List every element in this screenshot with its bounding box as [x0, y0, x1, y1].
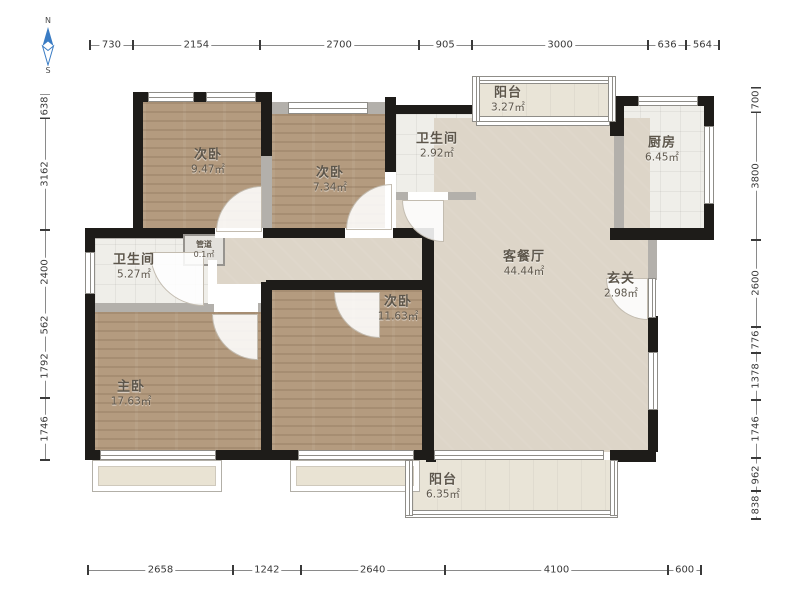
room-name: 玄关: [604, 271, 638, 287]
dimension-tick: [232, 565, 234, 575]
room-area: 6.35㎡: [426, 489, 460, 502]
room-name: 客餐厅: [503, 249, 545, 265]
wall-segment: [614, 134, 624, 234]
room-area: 9.47㎡: [191, 164, 225, 177]
dimension-label-top: 2700: [324, 40, 353, 51]
room-floor-living-dining: [217, 238, 434, 284]
wall-segment: [261, 154, 272, 230]
room-label-bedroom-top-mid: 次卧7.34㎡: [313, 165, 347, 194]
dimension-tick: [751, 490, 761, 492]
compass: N S: [34, 16, 62, 76]
compass-north-label: N: [34, 16, 62, 26]
window: [648, 278, 656, 318]
door-opening: [408, 192, 448, 200]
dimension-tick: [647, 40, 649, 50]
dimension-tick: [751, 399, 761, 401]
window: [298, 450, 414, 460]
dimension-label-top: 905: [434, 40, 457, 51]
room-area: 17.63㎡: [111, 396, 152, 409]
dimension-label-right: 2600: [751, 269, 762, 298]
dimension-tick: [685, 40, 687, 50]
room-name: 卫生间: [416, 131, 458, 147]
window: [476, 116, 610, 126]
dimension-tick: [444, 565, 446, 575]
wall-segment: [610, 228, 714, 240]
room-label-balcony-bottom: 阳台6.35㎡: [426, 472, 460, 501]
window: [472, 76, 480, 122]
room-label-duct: 管道0.1㎡: [194, 240, 215, 260]
window: [608, 76, 616, 122]
dimension-tick: [89, 40, 91, 50]
dimension-label-right: 962: [751, 463, 762, 486]
window: [100, 450, 216, 460]
dimension-label-left: 638: [40, 95, 51, 118]
room-label-balcony-top: 阳台3.27㎡: [491, 85, 525, 114]
window: [288, 102, 368, 114]
dimension-label-right: 776: [751, 329, 762, 352]
room-area: 2.92㎡: [416, 148, 458, 161]
dimension-line-bottom: [88, 570, 701, 571]
wall-segment: [261, 92, 272, 156]
dimension-tick: [718, 40, 720, 50]
compass-south-label: S: [34, 66, 62, 76]
window: [638, 96, 698, 106]
dimension-label-right: 838: [751, 493, 762, 516]
window: [405, 460, 413, 516]
dimension-label-left: 1792: [40, 352, 51, 381]
dimension-label-left: 562: [40, 313, 51, 336]
door-opening: [214, 303, 258, 312]
dimension-label-right: 1378: [751, 362, 762, 391]
dimension-tick: [300, 565, 302, 575]
dimension-tick: [751, 457, 761, 459]
window: [472, 76, 616, 84]
room-area: 5.27㎡: [113, 269, 155, 282]
dimension-line-right: [756, 88, 757, 519]
dimension-label-top: 3000: [545, 40, 574, 51]
room-area: 3.27㎡: [491, 102, 525, 115]
dimension-tick: [40, 229, 50, 231]
window: [148, 92, 194, 102]
dimension-label-top: 636: [656, 40, 679, 51]
dimension-tick: [471, 40, 473, 50]
wall-segment: [648, 238, 657, 280]
dimension-tick: [40, 397, 50, 399]
dimension-tick: [751, 239, 761, 241]
dimension-label-left: 2400: [40, 257, 51, 286]
room-name: 次卧: [313, 165, 347, 181]
room-label-bathroom-top: 卫生间2.92㎡: [416, 131, 458, 160]
window: [434, 450, 604, 460]
dimension-label-top: 730: [100, 40, 123, 51]
room-area: 0.1㎡: [194, 250, 215, 260]
bay-window: [92, 460, 222, 492]
dimension-label-right: 3800: [751, 161, 762, 190]
window: [405, 510, 618, 518]
dimension-label-bottom: 2640: [358, 565, 387, 576]
dimension-label-left: 3162: [40, 159, 51, 188]
room-name: 管道: [194, 240, 215, 250]
room-label-bathroom-left: 卫生间5.27㎡: [113, 252, 155, 281]
dimension-tick: [418, 40, 420, 50]
bay-window: [290, 460, 420, 492]
room-label-entry: 玄关2.98㎡: [604, 271, 638, 300]
floor-plan: N S 次卧9.47㎡次卧7.34㎡卫生间2.92㎡阳台3.27㎡厨房6.45㎡…: [0, 0, 800, 600]
window: [648, 352, 658, 410]
dimension-tick: [132, 40, 134, 50]
wall-segment: [422, 280, 434, 460]
room-label-bedroom-top-left: 次卧9.47㎡: [191, 147, 225, 176]
window: [85, 252, 95, 294]
dimension-label-bottom: 4100: [542, 565, 571, 576]
window: [206, 92, 256, 102]
room-area: 6.45㎡: [645, 152, 679, 165]
room-name: 厨房: [645, 135, 679, 151]
room-name: 卫生间: [113, 252, 155, 268]
room-label-bedroom-mid: 次卧11.63㎡: [378, 294, 419, 323]
dimension-label-bottom: 1242: [252, 565, 281, 576]
room-name: 阳台: [491, 85, 525, 101]
room-name: 主卧: [111, 379, 152, 395]
wall-segment: [394, 105, 478, 114]
dimension-label-bottom: 600: [673, 565, 696, 576]
room-label-living-dining: 客餐厅44.44㎡: [503, 249, 545, 278]
dimension-label-bottom: 2658: [146, 565, 175, 576]
dimension-tick: [667, 565, 669, 575]
dimension-tick: [87, 565, 89, 575]
dimension-label-top: 564: [691, 40, 714, 51]
wall-segment: [266, 280, 432, 290]
window: [610, 460, 618, 516]
dimension-label-right: 1746: [751, 414, 762, 443]
dimension-label-right: 700: [751, 88, 762, 111]
dimension-tick: [751, 352, 761, 354]
room-area: 44.44㎡: [503, 266, 545, 279]
room-name: 次卧: [378, 294, 419, 310]
wall-segment: [133, 92, 143, 238]
dimension-tick: [700, 565, 702, 575]
compass-arrow-icon: [40, 26, 56, 66]
wall-segment: [261, 282, 272, 460]
room-area: 7.34㎡: [313, 182, 347, 195]
dimension-tick: [259, 40, 261, 50]
room-name: 阳台: [426, 472, 460, 488]
dimension-label-top: 2154: [182, 40, 211, 51]
dimension-tick: [751, 518, 761, 520]
door-opening: [208, 260, 217, 304]
room-area: 11.63㎡: [378, 311, 419, 324]
room-area: 2.98㎡: [604, 288, 638, 301]
window: [704, 126, 714, 204]
room-label-master-bedroom: 主卧17.63㎡: [111, 379, 152, 408]
dimension-tick: [40, 459, 50, 461]
room-label-kitchen: 厨房6.45㎡: [645, 135, 679, 164]
dimension-label-left: 1746: [40, 414, 51, 443]
room-name: 次卧: [191, 147, 225, 163]
